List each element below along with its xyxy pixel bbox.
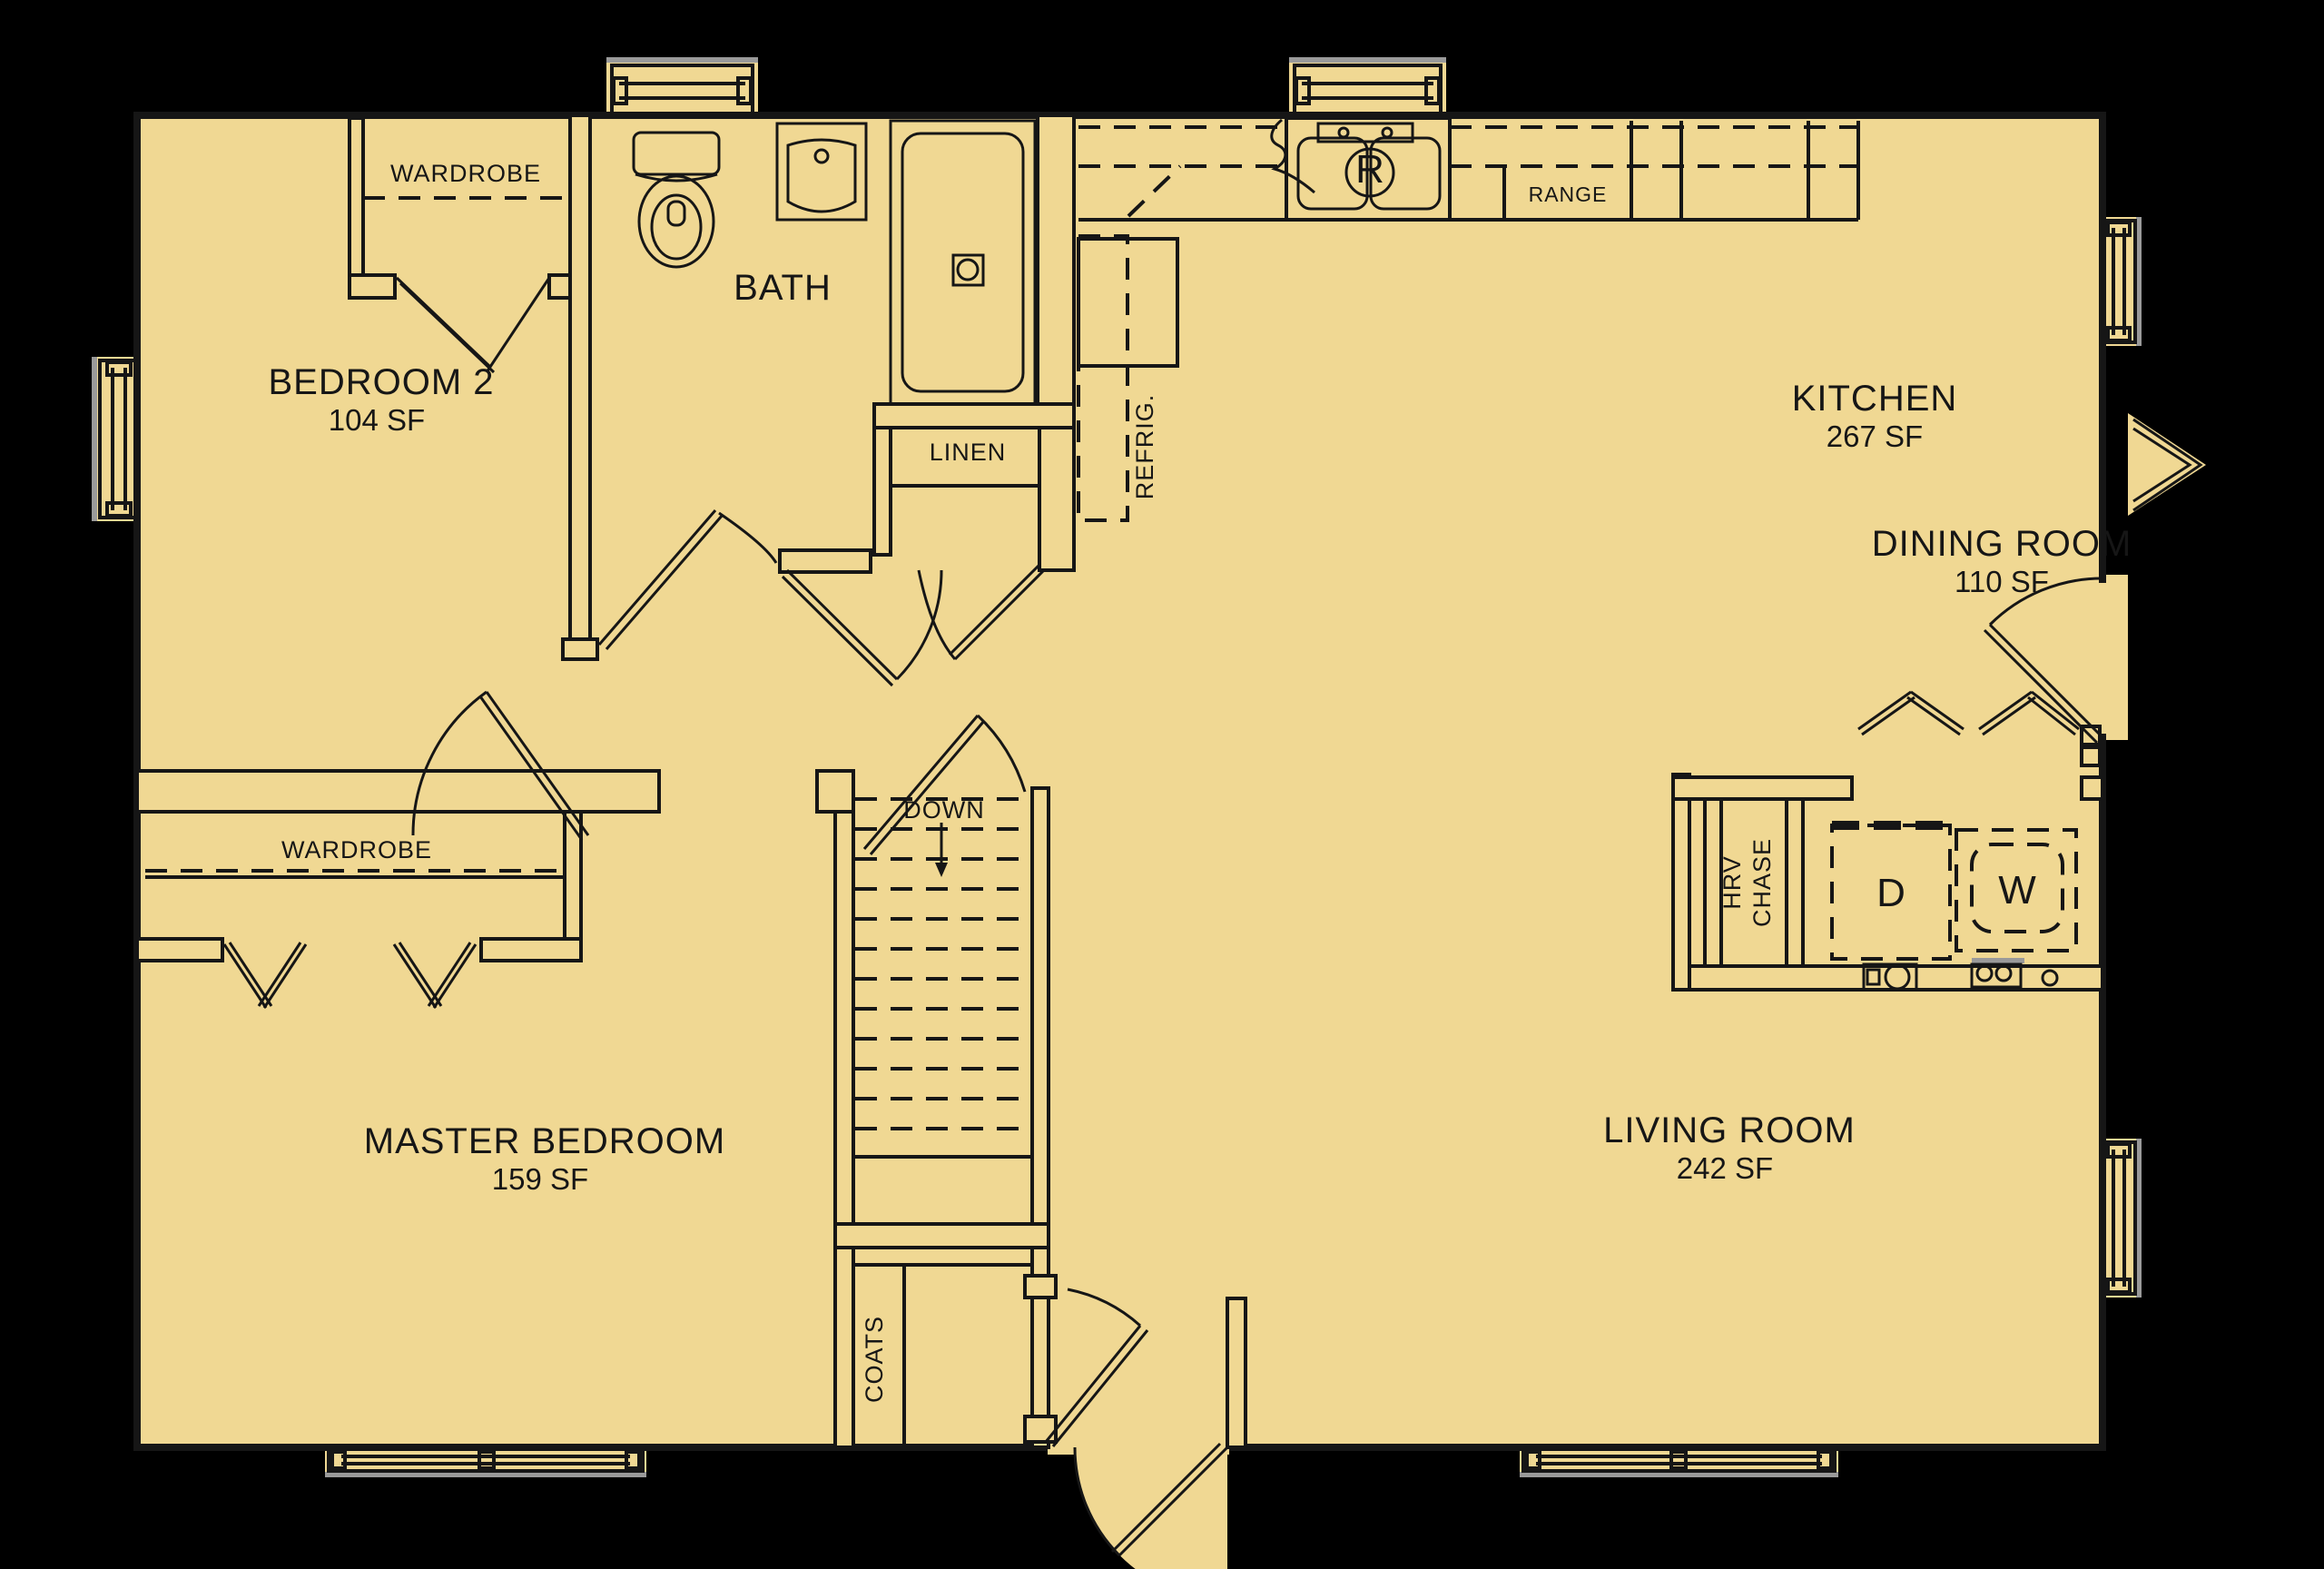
master-wardrobe-label: WARDROBE	[281, 836, 432, 863]
bedroom2-door-jamb	[563, 639, 597, 659]
floor-area	[96, 62, 2206, 1569]
floor-plan-page: R BEDROOM 2 104 SF BATH	[0, 0, 2324, 1569]
laundry-west-wall	[1673, 775, 1689, 990]
dining-area: 110 SF	[1955, 565, 2049, 598]
laundry-north-wall	[1673, 777, 1852, 799]
kitchen-label: KITCHEN	[1792, 379, 1958, 419]
disposal-label: R	[1355, 147, 1384, 192]
living-label: LIVING ROOM	[1603, 1110, 1856, 1150]
bedroom2-area: 104 SF	[329, 403, 425, 437]
master-area: 159 SF	[492, 1162, 588, 1196]
master-wardrobe-jamb-right	[481, 939, 581, 961]
east-exterior-fan	[2128, 413, 2206, 516]
laundry-north-wall-end	[2082, 777, 2102, 799]
master-wardrobe-east-wall	[565, 812, 581, 941]
down-label: DOWN	[903, 796, 984, 824]
washer-label: W	[1998, 868, 2036, 913]
dryer-label: D	[1876, 871, 1905, 915]
wardrobe2-left-wall	[350, 118, 363, 277]
linen-east-wall	[1039, 428, 1074, 570]
laundry-south-wall	[1689, 966, 2102, 990]
entry-east-wall	[1227, 1298, 1246, 1447]
wardrobe2-label: WARDROBE	[390, 160, 541, 187]
laundry-bifold-jamb2	[2082, 747, 2100, 765]
bedroom2-bath-wall	[570, 115, 590, 646]
coats-jamb-bottom	[1025, 1416, 1056, 1442]
stair-right-wall	[1032, 788, 1049, 1447]
dining-door-opening	[2095, 583, 2110, 734]
master-hall-wall	[137, 771, 659, 812]
floor-plan-drawing: R BEDROOM 2 104 SF BATH	[0, 0, 2324, 1569]
range-label: RANGE	[1529, 183, 1608, 206]
master-label: MASTER BEDROOM	[364, 1121, 725, 1161]
master-hall-wall-end	[817, 771, 853, 812]
bedroom2-label: BEDROOM 2	[268, 362, 494, 402]
kitchen-area: 267 SF	[1827, 419, 1923, 453]
master-wardrobe-jamb-left	[137, 939, 222, 961]
hrv-right-wall	[1787, 799, 1803, 966]
kitchen-west-wall	[1038, 115, 1074, 404]
wardrobe2-left-jamb	[350, 275, 395, 298]
coats-label: COATS	[861, 1316, 888, 1403]
linen-west-wall	[874, 428, 891, 555]
hrv-label-1: HRV	[1718, 855, 1746, 910]
coats-jamb-top	[1025, 1276, 1056, 1298]
entry-exterior-swing	[1075, 1447, 1227, 1569]
living-area: 242 SF	[1677, 1151, 1773, 1185]
bath-hall-wall	[780, 550, 871, 572]
stair-left-wall	[835, 788, 853, 1447]
stair-bottom-wall	[835, 1224, 1049, 1248]
bath-label: BATH	[734, 268, 832, 308]
linen-top-wall	[874, 404, 1074, 428]
refrig-label: REFRIG.	[1131, 394, 1158, 500]
hrv-label-2: CHASE	[1748, 838, 1776, 927]
dining-label: DINING ROOM	[1872, 524, 2132, 564]
linen-label: LINEN	[930, 439, 1007, 466]
